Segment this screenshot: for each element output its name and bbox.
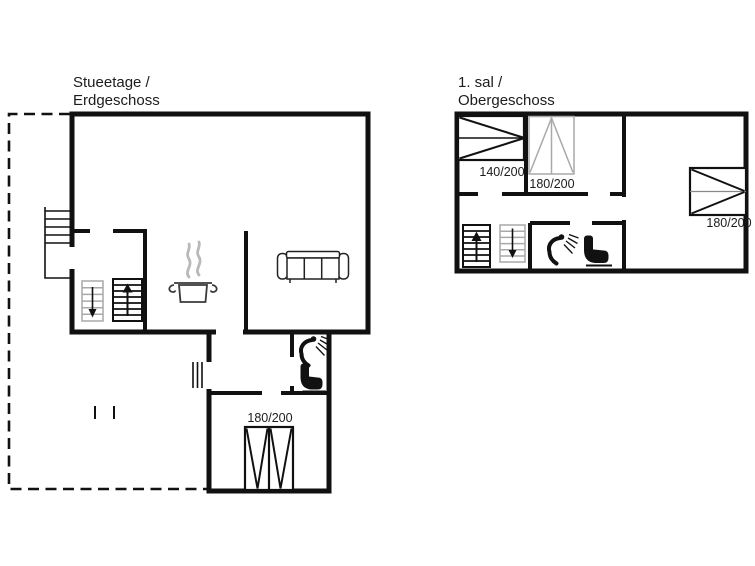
bed-size-label: 180/200 (247, 411, 292, 425)
ground-floor-title-line2: Erdgeschoss (73, 92, 160, 109)
toilet-icon (301, 364, 327, 392)
upper-floor-title-line1: 1. sal / (458, 74, 503, 91)
steam-icon (187, 242, 200, 277)
stairs-up-icon (463, 225, 490, 267)
bed-size-label: 180/200 (529, 177, 574, 191)
terrace-ticks (95, 406, 114, 419)
floor-plan: Stueetage / Erdgeschoss (0, 0, 755, 566)
cooking-pot-icon (169, 283, 216, 302)
upper-floor-title-line2: Obergeschoss (458, 92, 555, 109)
bed-size-label: 180/200 (706, 216, 751, 230)
ground-floor: Stueetage / Erdgeschoss (9, 74, 368, 491)
stairs-down-icon (500, 225, 525, 262)
terrace-outline (9, 114, 207, 489)
shower-icon (301, 336, 331, 365)
double-bed-icon (245, 427, 293, 490)
terrace-door-hatch-icon (193, 362, 202, 388)
bed-right-icon (690, 168, 746, 215)
ground-floor-title-line1: Stueetage / (73, 74, 151, 91)
bed-center-icon (529, 117, 574, 175)
shower-icon (549, 234, 579, 263)
sofa-icon (278, 252, 349, 284)
bed-size-label: 140/200 (479, 165, 524, 179)
entrance-steps-icon (45, 207, 72, 278)
bed-left-icon (458, 116, 524, 160)
floor-plan-canvas: Stueetage / Erdgeschoss (0, 0, 755, 566)
stairs-down-icon (82, 281, 103, 321)
stairs-up-icon (113, 279, 142, 321)
toilet-icon (584, 236, 612, 266)
upper-floor: 1. sal / Obergeschoss (457, 74, 752, 271)
